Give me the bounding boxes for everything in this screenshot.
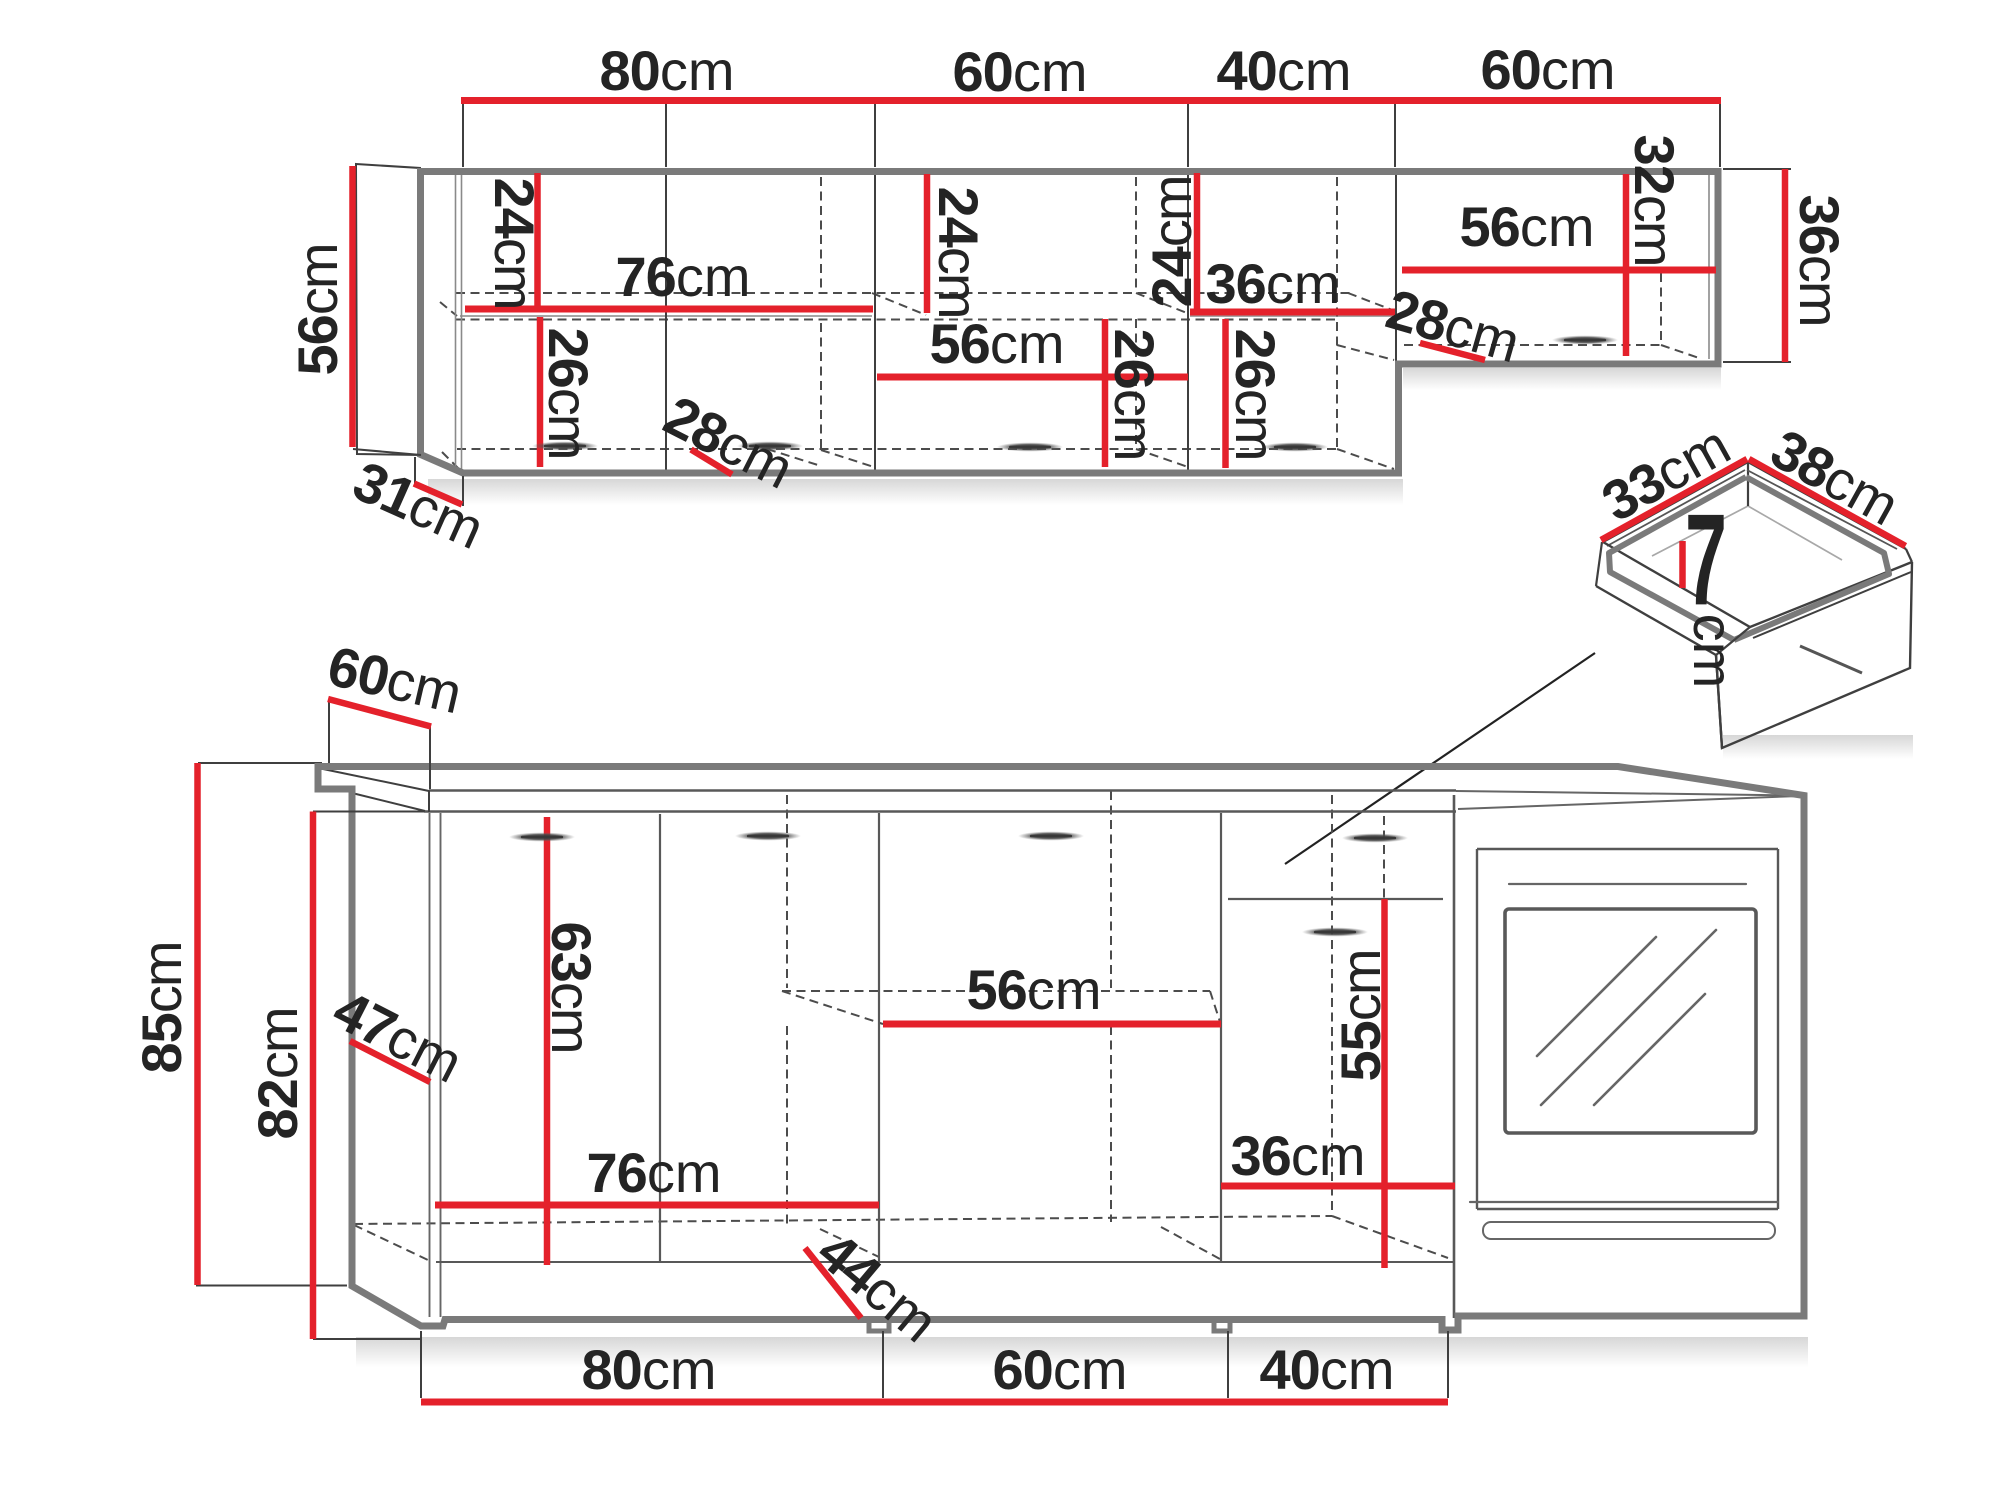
svg-text:60cm: 60cm — [953, 40, 1088, 103]
svg-text:26cm: 26cm — [1103, 329, 1166, 460]
svg-text:26cm: 26cm — [1224, 329, 1287, 460]
svg-text:60cm: 60cm — [993, 1338, 1128, 1401]
svg-text:24cm: 24cm — [927, 187, 990, 318]
svg-text:36cm: 36cm — [1206, 252, 1341, 315]
svg-text:80cm: 80cm — [600, 39, 735, 102]
svg-text:56cm: 56cm — [967, 958, 1102, 1021]
svg-text:40cm: 40cm — [1217, 39, 1352, 102]
svg-text:24cm: 24cm — [1140, 177, 1203, 308]
svg-text:80cm: 80cm — [582, 1338, 717, 1401]
svg-text:56cm: 56cm — [1460, 195, 1595, 258]
svg-text:56cm: 56cm — [930, 312, 1065, 375]
svg-text:85cm: 85cm — [130, 943, 193, 1074]
svg-text:76cm: 76cm — [616, 245, 751, 308]
svg-text:55cm: 55cm — [1329, 951, 1392, 1082]
svg-text:26cm: 26cm — [537, 328, 600, 459]
svg-text:76cm: 76cm — [587, 1141, 722, 1204]
svg-text:36cm: 36cm — [1788, 195, 1851, 326]
svg-text:24cm: 24cm — [483, 178, 546, 309]
svg-text:82cm: 82cm — [246, 1009, 309, 1140]
svg-text:cm: cm — [1682, 614, 1745, 689]
svg-text:60cm: 60cm — [1481, 38, 1616, 101]
svg-text:7: 7 — [1685, 487, 1727, 633]
svg-text:36cm: 36cm — [1231, 1124, 1366, 1187]
svg-text:63cm: 63cm — [540, 922, 603, 1053]
svg-text:32cm: 32cm — [1623, 135, 1686, 266]
svg-text:40cm: 40cm — [1260, 1338, 1395, 1401]
svg-text:56cm: 56cm — [286, 245, 349, 376]
